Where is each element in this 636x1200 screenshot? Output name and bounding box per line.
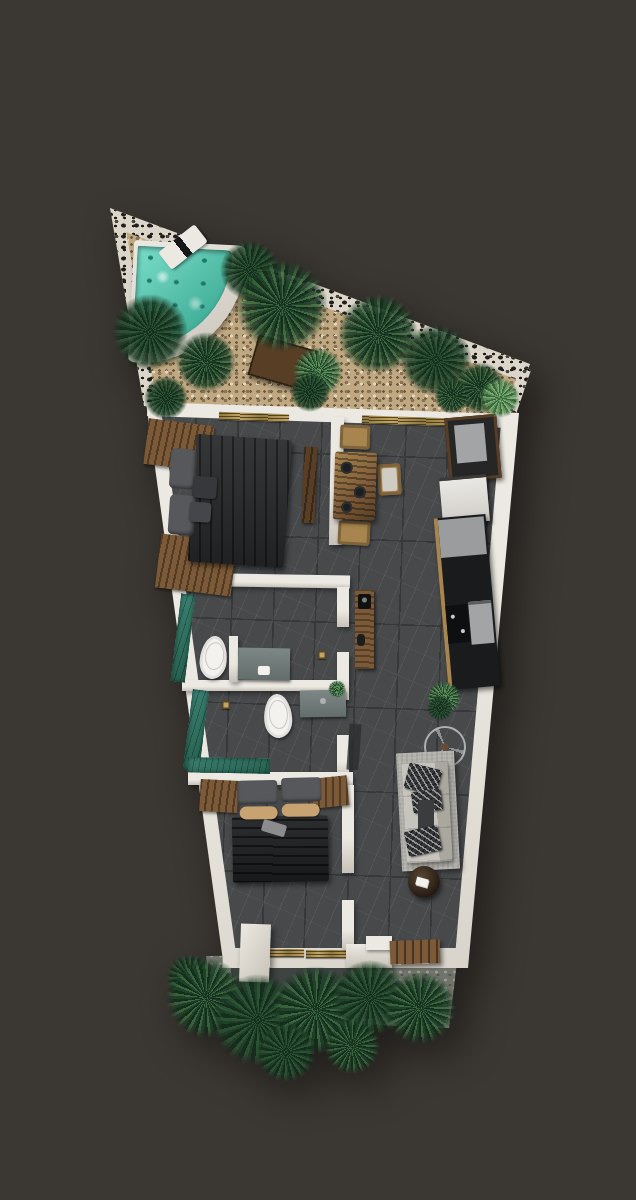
villa-plot xyxy=(0,0,636,1200)
entry-palm xyxy=(324,1018,380,1074)
vanity-plant xyxy=(328,680,346,698)
entry-palm xyxy=(384,972,456,1044)
garden-palm xyxy=(290,372,330,412)
garden-palm xyxy=(176,332,236,392)
garden-monstera xyxy=(480,378,520,418)
vegetation-layer xyxy=(0,0,636,1200)
garden-palm xyxy=(144,376,188,420)
garden-palm xyxy=(434,378,470,414)
living-plant xyxy=(427,695,453,721)
entry-palm xyxy=(256,1022,316,1082)
garden-palm xyxy=(236,260,328,352)
floor-plan-scene xyxy=(0,0,636,1200)
